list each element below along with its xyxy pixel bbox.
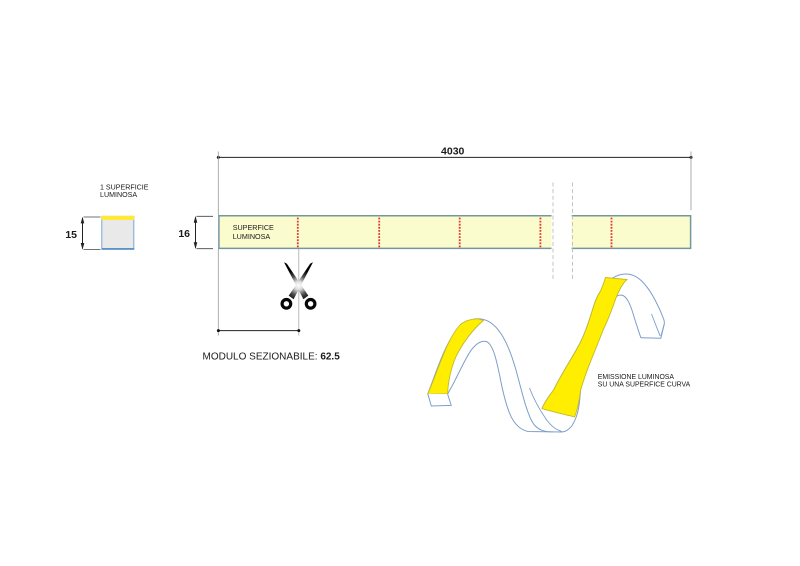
svg-text:15: 15 [65,229,77,241]
svg-text:EMISSIONE LUMINOSA: EMISSIONE LUMINOSA [598,374,675,381]
svg-text:16: 16 [178,228,190,240]
svg-text:SU UNA SUPERFICE CURVA: SU UNA SUPERFICE CURVA [598,382,691,389]
svg-text:4030: 4030 [441,146,465,158]
svg-text:MODULO SEZIONABILE: 62.5: MODULO SEZIONABILE: 62.5 [203,352,341,363]
svg-text:LUMINOSA: LUMINOSA [233,232,271,241]
svg-text:LUMINOSA: LUMINOSA [100,191,137,199]
svg-text:SUPERFICE: SUPERFICE [233,223,274,232]
